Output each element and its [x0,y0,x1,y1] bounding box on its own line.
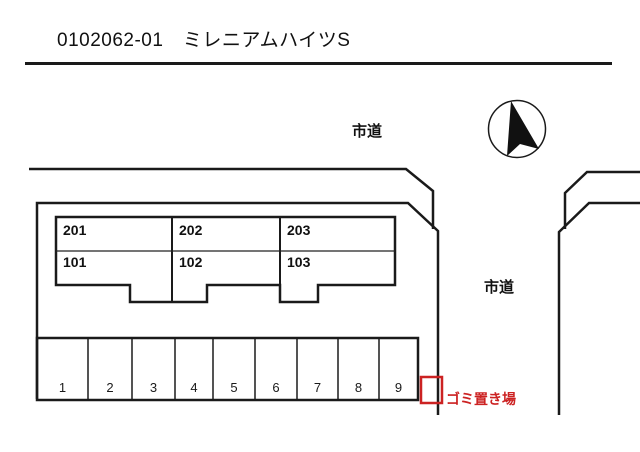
garbage-area-label: ゴミ置き場 [446,389,516,409]
unit-label-102: 102 [179,254,202,270]
parking-space-label-1: 1 [37,380,88,396]
unit-label-201: 201 [63,222,86,238]
building-outline [56,217,395,302]
site-boundary-outer [29,169,433,229]
parking-space-label-4: 4 [175,380,213,396]
road-label-right: 市道 [484,276,514,297]
road-label-top: 市道 [352,120,382,141]
parking-space-label-3: 3 [132,380,175,396]
road-edge-right-inner [559,203,640,415]
unit-label-103: 103 [287,254,310,270]
unit-label-203: 203 [287,222,310,238]
north-arrow-icon [489,101,546,158]
parking-space-label-7: 7 [297,380,338,396]
parking-space-label-8: 8 [338,380,379,396]
site-plan-page: 0102062-01 ミレニアムハイツS [0,0,640,452]
unit-label-202: 202 [179,222,202,238]
parking-space-label-5: 5 [213,380,255,396]
parking-space-label-6: 6 [255,380,297,396]
parking-space-label-2: 2 [88,380,132,396]
road-edge-right-outer [565,172,640,229]
unit-label-101: 101 [63,254,86,270]
parking-space-label-9: 9 [379,380,418,396]
